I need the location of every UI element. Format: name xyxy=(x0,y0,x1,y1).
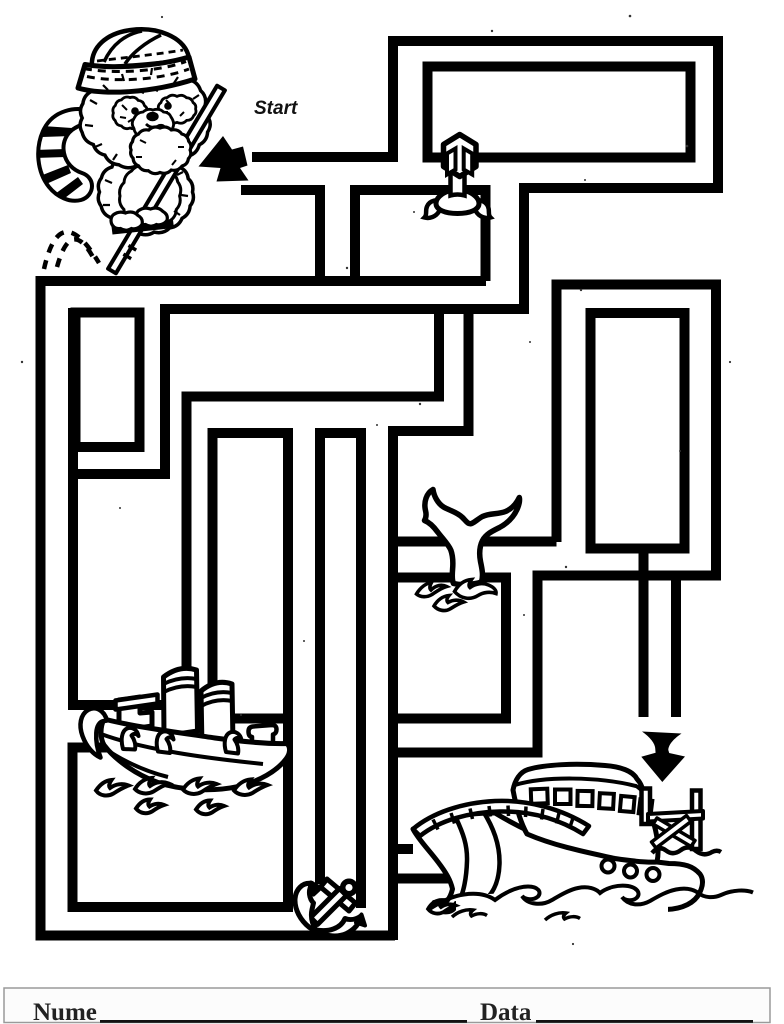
svg-text:Data: Data xyxy=(480,999,532,1024)
svg-text:Nume: Nume xyxy=(33,999,97,1024)
svg-text:Start: Start xyxy=(254,98,298,119)
